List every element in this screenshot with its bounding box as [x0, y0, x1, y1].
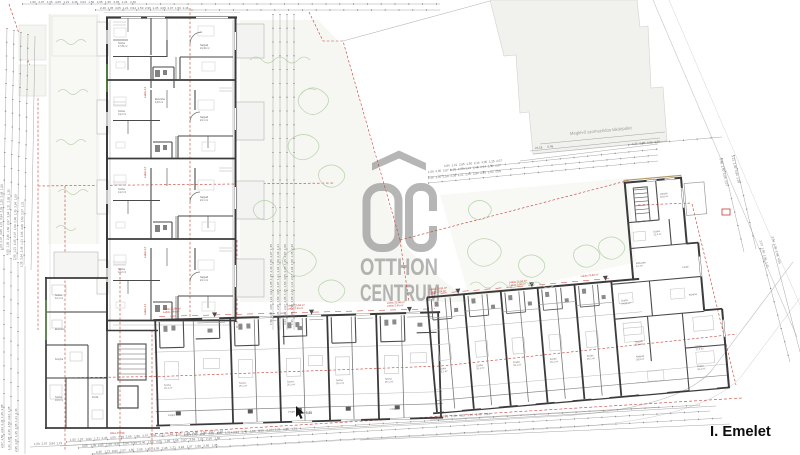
svg-text:24,1 m²: 24,1 m² [200, 119, 208, 122]
svg-text:24,1 m²: 24,1 m² [200, 199, 208, 202]
svg-text:14,2 m²: 14,2 m² [118, 191, 126, 194]
svg-text:3,94 1,21 2,07 2,95 1,35: 3,94 1,21 2,07 2,95 1,35 1,50 4,05 2,46 … [283, 244, 287, 325]
svg-text:Konyha: Konyha [55, 358, 64, 361]
svg-text:2,07 1,50 3,94 2,46 1,35: 2,07 1,50 3,94 2,46 1,35 2,95 [0, 404, 4, 448]
svg-text:25,1 m²: 25,1 m² [239, 385, 247, 388]
svg-text:Lakás 2,0: Lakás 2,0 [143, 246, 147, 258]
svg-text:1,50 2,07 4,05 1,21 3,94: 1,50 2,07 4,05 1,21 3,94 2,95 1,35 2,46 … [269, 244, 273, 325]
svg-text:Fürdő: Fürdő [682, 265, 689, 269]
svg-text:Lakás 2,0: Lakás 2,0 [143, 303, 147, 315]
svg-text:1,35 2,95 1,50 4,05 2,46: 1,35 2,95 1,50 4,05 2,46 1,21 2,07 3,94 … [290, 244, 294, 325]
svg-text:+5,85: +5,85 [304, 411, 312, 415]
svg-text:Fürdő: Fürdő [92, 396, 99, 399]
svg-text:25,1 m²: 25,1 m² [385, 380, 393, 383]
svg-text:14,2 m²: 14,2 m² [118, 271, 126, 274]
svg-text:24,10 m²: 24,10 m² [200, 47, 210, 50]
svg-text:Lakás 2,0: Lakás 2,0 [143, 166, 147, 178]
svg-text:25,1 m²: 25,1 m² [287, 383, 295, 386]
svg-text:Előszoba: Előszoba [55, 328, 66, 331]
svg-text:Lakás 3,94 m²: Lakás 3,94 m² [387, 303, 404, 307]
svg-text:24,1 m²: 24,1 m² [200, 279, 208, 282]
svg-text:2,95 2,07 1,35 4,05 1,21: 2,95 2,07 1,35 4,05 1,21 2,46 [14, 408, 18, 452]
svg-text:14,2 m²: 14,2 m² [118, 113, 126, 116]
svg-text:25,1 m²: 25,1 m² [336, 382, 344, 385]
svg-text:Loggia: Loggia [168, 414, 176, 417]
svg-text:6,4 m²: 6,4 m² [636, 264, 643, 268]
svg-text:25,1 m²: 25,1 m² [164, 387, 172, 390]
svg-text:Lakás 2,0: Lakás 2,0 [143, 86, 147, 98]
svg-text:12,1 m²: 12,1 m² [55, 297, 63, 300]
svg-text:Loggia: Loggia [288, 410, 296, 413]
svg-text:2,46 1,35 2,95 1,50 4,05: 2,46 1,35 2,95 1,50 4,05 2,07 1,21 3,94 … [276, 244, 280, 325]
svg-text:1,50 2,07 1,35 4,05 1,: 1,50 2,07 1,35 4,05 1,21 2,46 3,94 1,50 … [30, 0, 136, 4]
svg-text:1,21 4,05 2,46 1,50 3,94: 1,21 4,05 2,46 1,50 3,94 1,35 [7, 406, 11, 450]
svg-text:Loggia: Loggia [390, 407, 398, 410]
svg-text:Lakás 3,94 m²: Lakás 3,94 m² [163, 309, 180, 313]
svg-text:OTTHON: OTTHON [360, 254, 438, 281]
svg-text:I. Emelet: I. Emelet [710, 424, 771, 440]
svg-text:10,6 m²: 10,6 m² [55, 399, 63, 402]
svg-text:2,46 1,35 4,05 1,21 3,94: 2,46 1,35 4,05 1,21 3,94 1,50 2,95 1,35 … [100, 6, 189, 10]
svg-text:17,25 m²: 17,25 m² [118, 45, 128, 48]
svg-text:6,40 m²: 6,40 m² [155, 101, 163, 104]
